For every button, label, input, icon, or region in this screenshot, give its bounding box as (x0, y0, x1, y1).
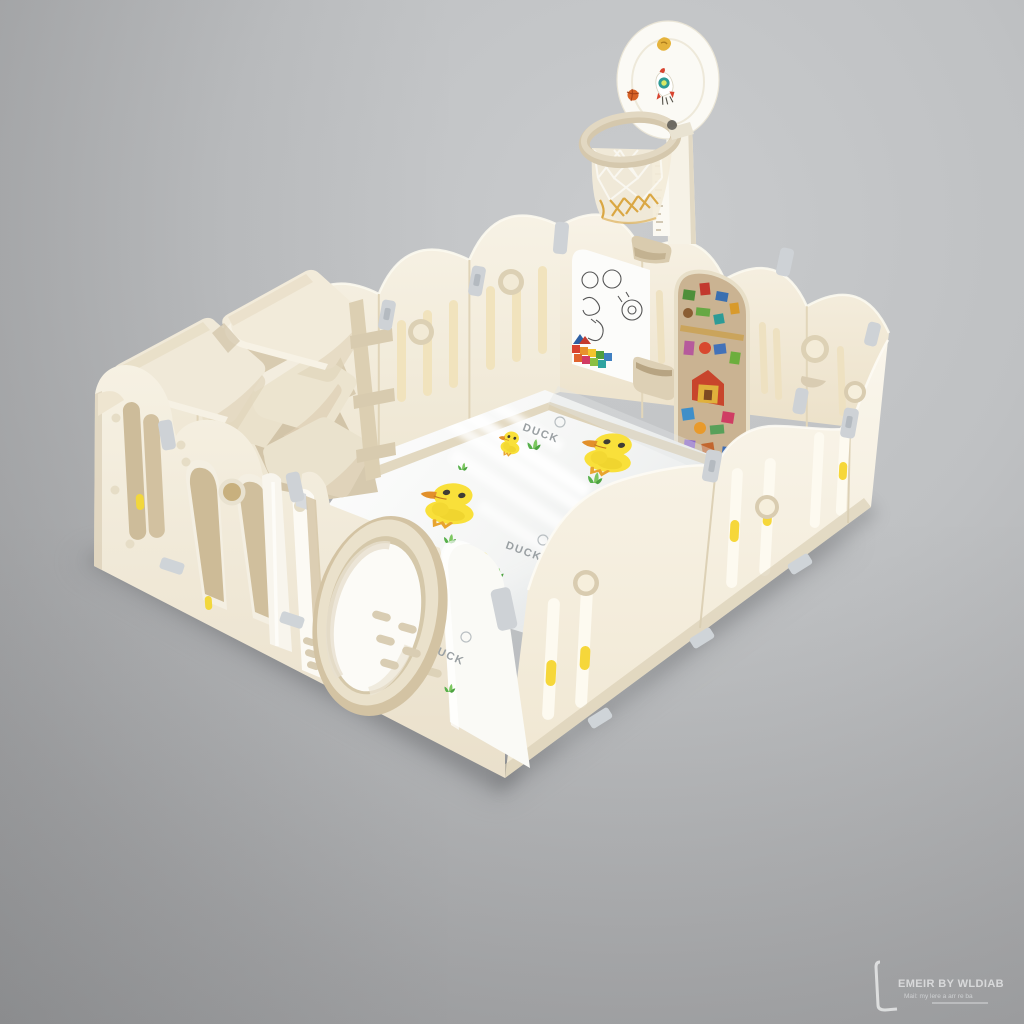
svg-text:EMEIR BY WLDIAB: EMEIR BY WLDIAB (898, 978, 1004, 990)
svg-text:Mail: my lere a arr re ba: Mail: my lere a arr re ba (904, 993, 973, 1000)
